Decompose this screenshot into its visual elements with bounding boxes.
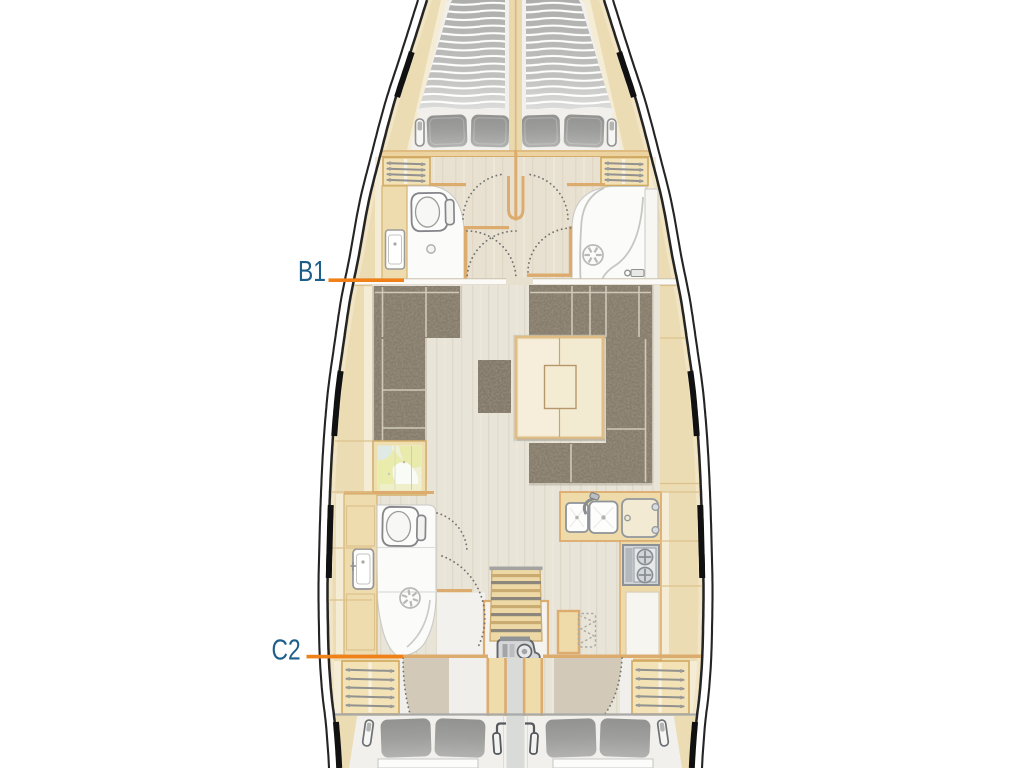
svg-text:B1: B1 xyxy=(298,257,326,288)
svg-text:C2: C2 xyxy=(272,635,301,666)
